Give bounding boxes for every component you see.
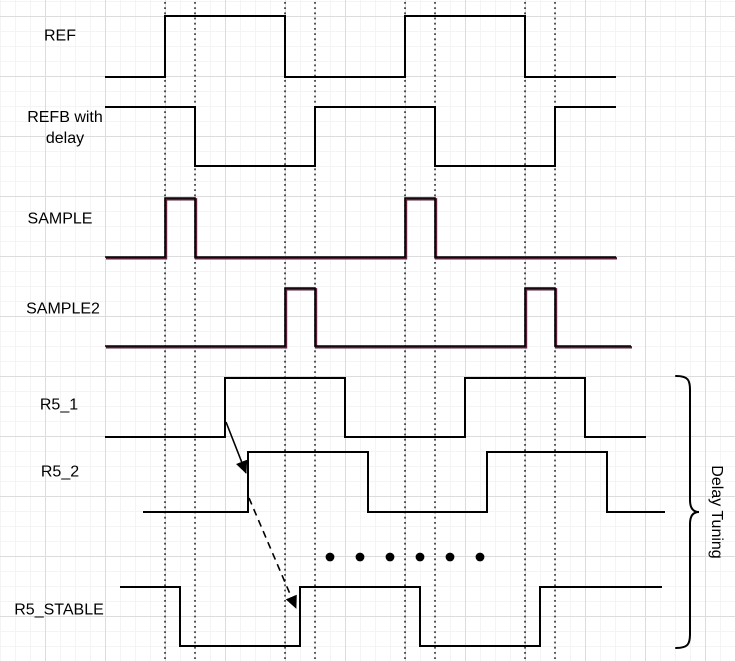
ellipsis-dot xyxy=(446,553,455,562)
r5-1-waveform xyxy=(105,378,646,437)
delay-tuning-label: Delay Tuning xyxy=(707,465,725,558)
waveform-plot xyxy=(0,0,735,661)
sample2-waveform xyxy=(105,288,631,346)
signal-label-r5-stable: R5_STABLE xyxy=(14,600,104,621)
signal-label-r5-1: R5_1 xyxy=(40,395,78,416)
signal-label-refb-with-delay: REFB with delay xyxy=(15,107,115,149)
ref-waveform xyxy=(105,16,616,77)
signal-label-r5-2: R5_2 xyxy=(41,462,79,483)
sample-waveform-underlay xyxy=(106,199,617,258)
delay-shift-arrow-dashed xyxy=(249,498,296,608)
signal-label-ref: REF xyxy=(44,26,76,47)
delay-tuning-brace xyxy=(676,376,699,648)
ellipsis-dot xyxy=(416,553,425,562)
delay-shift-arrow-solid xyxy=(226,422,246,473)
ellipsis-dot xyxy=(476,553,485,562)
ellipsis-dot xyxy=(386,553,395,562)
r5-2-waveform xyxy=(143,452,665,512)
refb-with-delay-waveform xyxy=(105,107,616,166)
ellipsis-dot xyxy=(356,553,365,562)
ellipsis-dot xyxy=(326,553,335,562)
timing-diagram-canvas: REF REFB with delay SAMPLE SAMPLE2 R5_1 … xyxy=(0,0,735,661)
sample2-waveform-underlay xyxy=(106,289,632,347)
sample-waveform xyxy=(105,198,616,257)
signal-label-sample: SAMPLE xyxy=(28,209,93,230)
r5-stable-waveform xyxy=(120,587,662,646)
signal-label-sample2: SAMPLE2 xyxy=(26,299,100,320)
